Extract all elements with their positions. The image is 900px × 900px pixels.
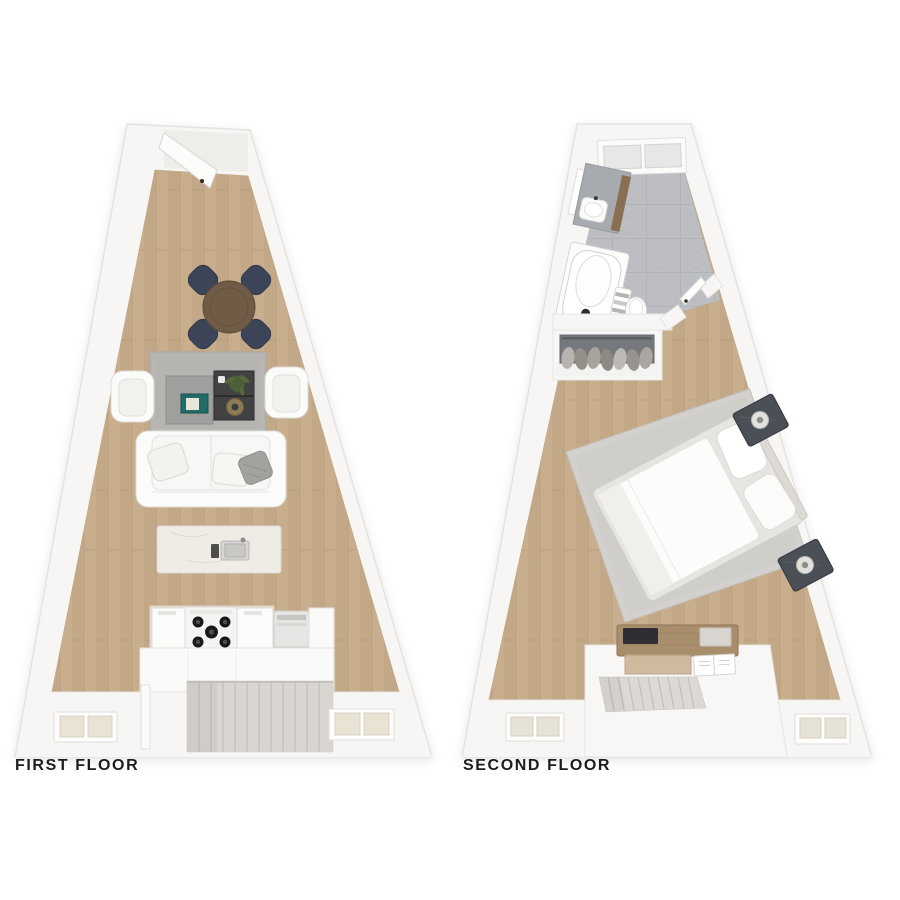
second-floor-staircase [599,677,706,712]
first-floor-window-right [329,709,394,740]
counter-return [309,608,334,650]
first-floor-window-left [54,712,117,742]
second-floor-plan [462,124,872,757]
kitchen-island [157,526,281,573]
bathroom-wall [553,314,672,330]
dresser [617,625,738,656]
stove [185,607,237,651]
round-dining-table [203,281,255,333]
second-floor-window-left [506,713,564,741]
closet-rod [562,337,652,340]
kitchen-counter [140,606,334,692]
cup [218,376,225,383]
first-floor-plan [15,124,432,757]
second-floor-window-right [795,714,850,744]
tray-center [232,404,239,411]
open-book [694,654,736,676]
coffee-table-light [166,376,213,424]
coffee-table-dark [214,371,254,420]
faucet [241,538,246,543]
partition-wall [141,685,150,749]
sofa [136,431,286,507]
first-floor-staircase [187,681,333,752]
second-floor-label: SECOND FLOOR [463,757,611,775]
door-handle [684,299,688,303]
armchair-right [265,367,308,418]
door-handle [200,179,204,183]
soap-dispenser [211,544,219,558]
dark-tray [623,628,658,644]
appliance [274,611,309,647]
decor-box [700,628,731,646]
book-cover-art [186,398,199,410]
island-sink [221,538,249,561]
closet [553,330,662,380]
first-floor-label: FIRST FLOOR [15,757,139,775]
armchair-left [111,371,154,422]
floorplan-canvas: FIRST FLOOR SECOND FLOOR [0,0,900,900]
wood-tray [625,655,691,674]
